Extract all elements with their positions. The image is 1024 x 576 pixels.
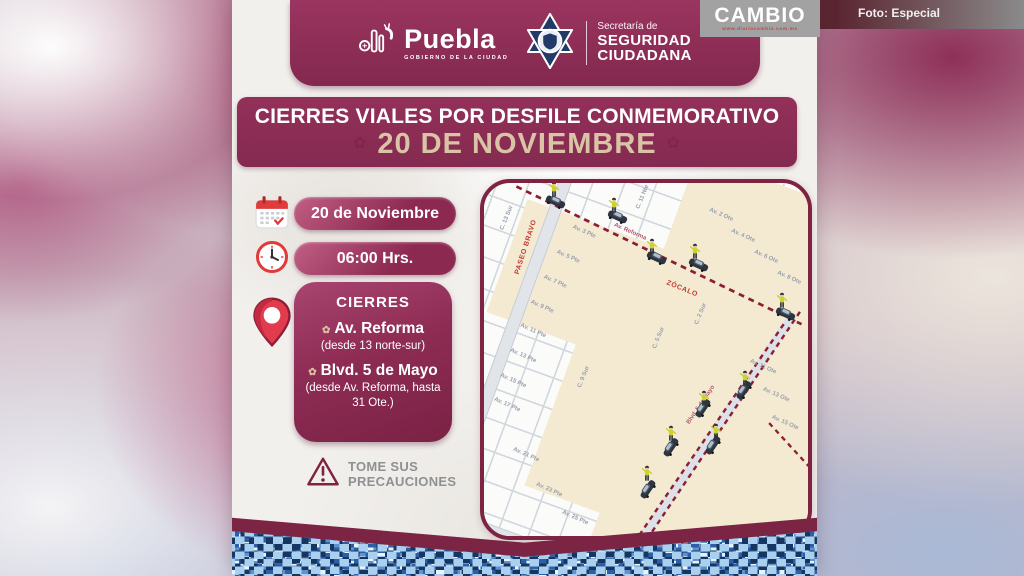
- closure-item: ✿Av. Reforma (desde 13 norte-sur): [302, 320, 444, 353]
- police-officer-icon: [548, 181, 559, 202]
- closures-box: CIERRES ✿Av. Reforma (desde 13 norte-sur…: [294, 282, 452, 442]
- street-label: Av. 17 Pte: [493, 397, 521, 414]
- flower-icon: ✿: [353, 136, 367, 153]
- warning-line2: PRECAUCIONES: [348, 475, 456, 490]
- banner-date-title: ✿ 20 DE NOVIEMBRE ✿: [353, 129, 681, 159]
- police-officer-icon: [699, 390, 710, 411]
- street-label: Av. 5 Pte: [556, 249, 581, 265]
- time-pill: 06:00 Hrs.: [294, 242, 456, 275]
- ssc-line1: SEGURIDAD: [597, 33, 691, 49]
- police-camo-stripe: [232, 505, 817, 576]
- map-pin-icon: [252, 296, 292, 348]
- screenshot-stage: Puebla GOBIERNO DE LA CIUDAD Secretaría …: [0, 0, 1024, 576]
- flower-bullet-icon: ✿: [322, 325, 330, 336]
- header-bar: Puebla GOBIERNO DE LA CIUDAD Secretaría …: [290, 0, 760, 86]
- photo-credit: Foto: Especial: [858, 6, 940, 20]
- closure-name: Av. Reforma: [334, 320, 424, 337]
- closure-item: ✿Blvd. 5 de Mayo (desde Av. Reforma, has…: [302, 362, 444, 410]
- warning-line1: TOME SUS: [348, 460, 456, 475]
- street-label: Av. 6 Ote: [753, 249, 779, 265]
- bottom-band: [232, 505, 817, 576]
- clock-icon: [255, 240, 291, 276]
- logo-divider: [586, 21, 587, 65]
- puebla-city-logo: Puebla GOBIERNO DE LA CIUDAD: [358, 23, 508, 64]
- puebla-emblem-icon: [358, 23, 396, 64]
- street-label: C. 2 Sur: [694, 302, 708, 325]
- time-text: 06:00 Hrs.: [337, 250, 414, 268]
- map-figures: PASEO BRAVOZÓCALOAv. ReformaBlvd. 5 de M…: [484, 183, 808, 536]
- road-closure-infographic: Puebla GOBIERNO DE LA CIUDAD Secretaría …: [232, 0, 817, 576]
- closures-title: CIERRES: [302, 294, 444, 311]
- warning-triangle-icon: [306, 456, 340, 493]
- police-officer-icon: [608, 197, 619, 218]
- date-text: 20 de Noviembre: [311, 205, 439, 223]
- banner-date-text: 20 DE NOVIEMBRE: [377, 129, 656, 159]
- police-officer-icon: [665, 426, 676, 447]
- street-label: Av. 8 Ote: [776, 270, 802, 286]
- police-officer-icon: [740, 370, 751, 391]
- ssc-logo: Secretaría de SEGURIDAD CIUDADANA: [524, 13, 691, 74]
- police-officer-icon: [777, 293, 788, 314]
- police-officer-icon: [641, 465, 652, 486]
- cambio-wordmark: CAMBIO: [714, 5, 805, 26]
- street-label: C. 11 Nte: [635, 184, 650, 210]
- ssc-line2: CIUDADANA: [597, 48, 691, 64]
- street-label: Av. 9 Pte: [530, 299, 555, 315]
- calendar-icon: [254, 194, 290, 230]
- title-banner: CIERRES VIALES POR DESFILE CONMEMORATIVO…: [237, 97, 797, 167]
- puebla-subtitle: GOBIERNO DE LA CIUDAD: [404, 55, 508, 61]
- police-officer-icon: [710, 423, 721, 444]
- cambio-url: www.diariocambio.com.mx: [722, 27, 797, 32]
- street-label: ZÓCALO: [665, 279, 698, 298]
- cambio-logo: CAMBIO www.diariocambio.com.mx: [700, 0, 820, 37]
- police-officer-icon: [689, 243, 700, 264]
- street-label: Av. 3 Pte: [572, 225, 597, 241]
- street-label: Av. 11 Ote: [748, 358, 776, 375]
- street-label: Av. 4 Ote: [730, 228, 756, 244]
- flower-bullet-icon: ✿: [308, 367, 316, 378]
- street-label: C. 9 Sur: [577, 365, 591, 388]
- flower-icon: ✿: [667, 136, 681, 153]
- puebla-wordmark: Puebla: [404, 26, 508, 53]
- street-label: PASEO BRAVO: [514, 218, 538, 275]
- banner-title: CIERRES VIALES POR DESFILE CONMEMORATIVO: [255, 105, 780, 129]
- street-label: Av. 13 Pte: [509, 348, 537, 365]
- police-officer-icon: [647, 238, 658, 259]
- ssc-pretitle: Secretaría de: [597, 22, 691, 33]
- warning-note: TOME SUS PRECAUCIONES: [306, 456, 456, 493]
- date-pill: 20 de Noviembre: [294, 197, 456, 230]
- police-star-badge-icon: [524, 13, 576, 74]
- closure-name: Blvd. 5 de Mayo: [321, 362, 438, 379]
- street-label: Av. 13 Ote: [761, 386, 790, 403]
- street-label: Av. 23 Pte: [535, 482, 563, 499]
- street-label: Av. 2 Ote: [708, 207, 734, 223]
- street-label: C. 5 Sur: [652, 327, 666, 350]
- street-label: Av. 15 Pte: [499, 372, 527, 389]
- street-label: Av. 15 Ote: [771, 414, 800, 431]
- street-label: Av. 21 Pte: [512, 446, 540, 463]
- map: PASEO BRAVOZÓCALOAv. ReformaBlvd. 5 de M…: [480, 179, 812, 540]
- street-label: Av. 7 Pte: [543, 274, 568, 290]
- street-label: Av. 11 Pte: [519, 323, 547, 340]
- street-label: C. 13 Sur: [499, 205, 514, 231]
- closure-detail: (desde 13 norte-sur): [302, 339, 444, 353]
- closure-detail: (desde Av. Reforma, hasta 31 Ote.): [302, 381, 444, 410]
